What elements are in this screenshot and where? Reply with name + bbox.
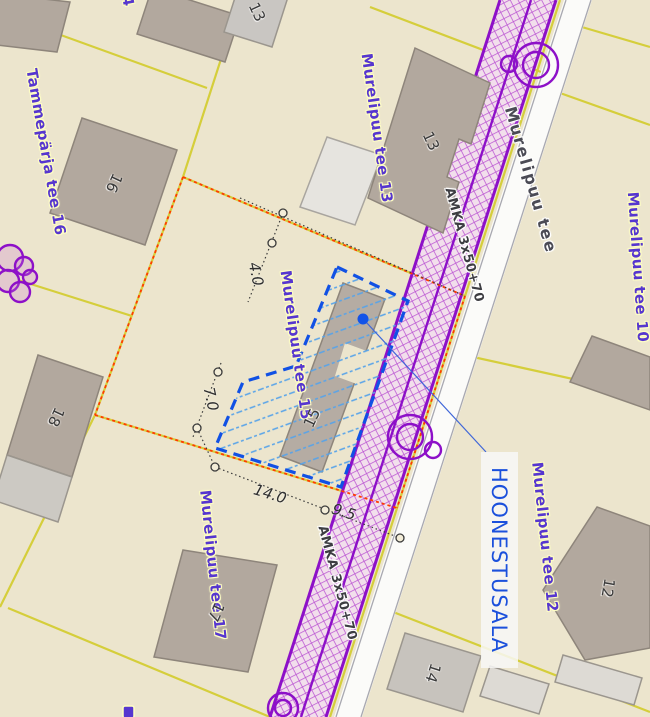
map-graphics-layer [0, 0, 650, 717]
map-canvas[interactable]: Tammepärja tee 16 Murelipuu tee 13 Murel… [0, 0, 650, 717]
building-topleft [0, 0, 70, 52]
label-fragment-bottom [123, 706, 134, 717]
annotation-anchor-dot [358, 314, 369, 325]
hoonestusala-annotation-box [481, 452, 518, 668]
